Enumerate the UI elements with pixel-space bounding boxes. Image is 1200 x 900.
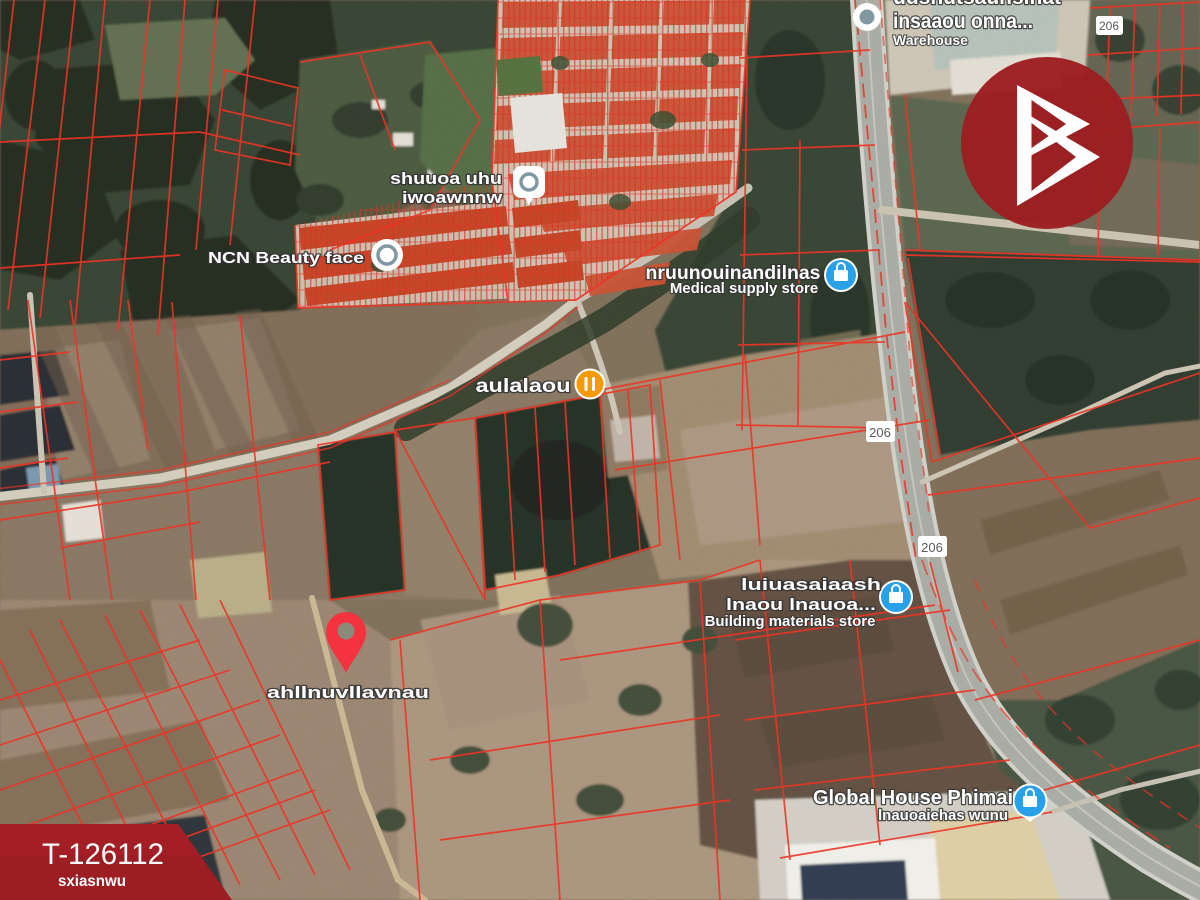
- svg-text:aulalaou: aulalaou: [476, 376, 571, 397]
- svg-text:T-126112: T-126112: [42, 838, 164, 871]
- svg-text:insaaou onna...: insaaou onna...: [893, 10, 1033, 33]
- svg-text:lnaou lnauoa...: lnaou lnauoa...: [726, 595, 876, 614]
- svg-text:Warehouse: Warehouse: [893, 32, 968, 48]
- svg-text:206: 206: [1099, 19, 1119, 33]
- svg-text:iwoawnnw: iwoawnnw: [402, 188, 503, 207]
- svg-text:Medical supply store: Medical supply store: [670, 280, 818, 297]
- svg-text:206: 206: [921, 540, 943, 555]
- svg-text:Building materials store: Building materials store: [705, 613, 876, 630]
- svg-text:lnauoaiehas wunu: lnauoaiehas wunu: [878, 807, 1008, 824]
- svg-text:206: 206: [869, 425, 891, 440]
- svg-text:ahllnuvllavnau: ahllnuvllavnau: [267, 683, 429, 702]
- svg-text:sxiasnwu: sxiasnwu: [58, 873, 126, 890]
- svg-text:Global House Phimai: Global House Phimai: [813, 787, 1013, 809]
- svg-text:shuuoa uhu: shuuoa uhu: [390, 169, 502, 188]
- svg-text:luiuasaiaash: luiuasaiaash: [741, 575, 881, 594]
- svg-text:uusnutsaunslnat: uusnutsaunslnat: [893, 0, 1061, 9]
- svg-text:NCN Beauty face: NCN Beauty face: [208, 250, 364, 267]
